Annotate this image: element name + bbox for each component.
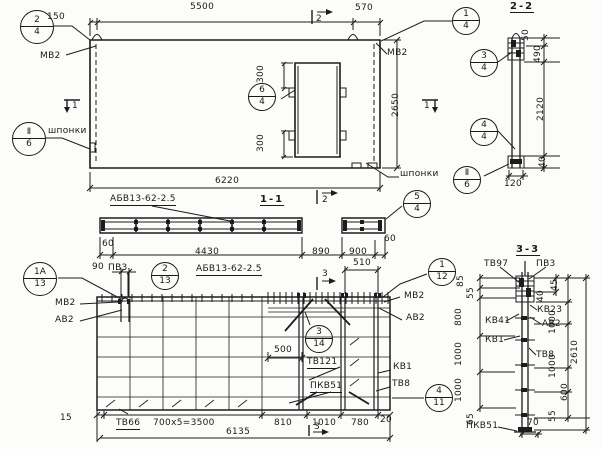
dim-1000-left-a: 1000: [455, 342, 464, 366]
label-tv97: ТВ97: [484, 260, 508, 269]
dim-490: 490: [534, 45, 543, 63]
dim-810: 810: [274, 419, 292, 428]
dim-60-left: 60: [102, 240, 114, 249]
dim-2650: 2650: [392, 93, 401, 117]
section-title-2-2: 2-2: [510, 2, 534, 13]
dim-55-right: 55: [549, 410, 558, 422]
label-tv66: ТВ66: [116, 419, 140, 430]
dim-510: 510: [353, 259, 371, 268]
dim-4430: 4430: [195, 248, 219, 257]
dim-5500: 5500: [190, 3, 214, 12]
callout-1a-13: 1А13: [23, 262, 57, 296]
section-marker-1-right: 1: [424, 102, 430, 111]
dim-15: 15: [60, 414, 72, 423]
callout-2-13: 213: [151, 262, 179, 290]
callout-1-4: 14: [452, 7, 480, 35]
dim-60-right: 60: [384, 235, 396, 244]
dim-90: 90: [92, 263, 104, 272]
callout-5-4: 54: [403, 190, 431, 218]
dim-45: 45: [551, 279, 560, 291]
dim-6220: 6220: [215, 177, 239, 186]
plan-linework: [58, 266, 427, 442]
drawing-linework: [0, 0, 602, 449]
label-shponki-bottom: шпонки: [400, 170, 439, 179]
drawing-sheet: 24 14 64 Ⅱ6 Ⅱ6 150 5500 570 2 МВ2 МВ2 1 …: [0, 0, 602, 449]
dim-55-left: 55: [467, 287, 476, 299]
dim-50: 50: [522, 29, 531, 41]
label-tv8-plan: ТВ8: [392, 380, 410, 389]
dim-120: 120: [504, 180, 522, 189]
label-mv2-right: МВ2: [387, 49, 408, 58]
dim-40: 40: [539, 156, 548, 168]
dim-800: 800: [455, 308, 464, 326]
dim-2120: 2120: [537, 97, 546, 121]
dim-1000-right-a: 1000: [549, 310, 558, 334]
dim-780: 780: [351, 419, 369, 428]
dim-300-top: 300: [257, 65, 266, 83]
label-av2-plan-left: АВ2: [55, 316, 74, 325]
callout-4-4: 44: [470, 118, 498, 146]
dim-1000-left-b: 1000: [455, 378, 464, 402]
label-pv3-plan: ПВ3: [108, 264, 128, 273]
label-mv2-left: МВ2: [40, 52, 61, 61]
label-kv1-plan: КВ1: [393, 363, 412, 372]
callout-keys-left: Ⅱ6: [12, 122, 46, 156]
dim-2610: 2610: [571, 340, 580, 364]
dim-150: 150: [47, 13, 65, 22]
label-kv41: КВ41: [485, 317, 510, 326]
label-pv3-33: ПВ3: [536, 260, 556, 269]
section-title-3-3: 3-3: [516, 245, 540, 256]
section-marker-1-left: 1: [72, 102, 78, 111]
section-marker-2-s11: 2: [322, 196, 328, 205]
dim-85: 85: [457, 275, 466, 287]
label-mv2-plan-right: МВ2: [404, 292, 425, 301]
dim-70: 70: [527, 419, 539, 428]
callout-keys-right: Ⅱ6: [453, 166, 481, 194]
dim-570: 570: [355, 4, 373, 13]
section-marker-3-bottom: 3: [314, 423, 320, 432]
section-title-1-1: 1-1: [260, 195, 284, 206]
label-av2-plan-right: АВ2: [406, 314, 425, 323]
callout-6-4: 64: [248, 83, 276, 111]
label-panel-mark-1-1: АБВ13-62-2.5: [110, 195, 176, 206]
dim-1000-right-b: 1000: [549, 354, 558, 378]
callout-3-14: 314: [305, 325, 333, 353]
dim-900: 900: [349, 248, 367, 257]
section-marker-2-top: 2: [316, 15, 322, 24]
label-shponki-left: шпонки: [48, 127, 87, 136]
callout-1-12: 112: [428, 258, 456, 286]
label-pkv51-33: ПКВ51: [466, 422, 498, 431]
dim-6135: 6135: [226, 428, 250, 437]
dim-20: 20: [380, 416, 392, 425]
dim-500: 500: [274, 346, 292, 355]
dim-700x5-3500: 700х5=3500: [153, 419, 215, 428]
dim-890: 890: [312, 248, 330, 257]
section-marker-3-top: 3: [322, 270, 328, 279]
callout-4-11: 411: [425, 384, 453, 412]
dim-40-right: 40: [537, 290, 546, 302]
label-tv121: ТВ121: [307, 358, 337, 369]
label-kv1-33: КВ1: [485, 336, 504, 345]
dim-300-bottom: 300: [257, 134, 266, 152]
label-mv2-plan-left: МВ2: [55, 299, 76, 308]
label-panel-mark-plan: АБВ13-62-2.5: [196, 265, 262, 276]
callout-3-4: 34: [470, 49, 498, 77]
label-pkv51-plan: ПКВ51: [310, 382, 342, 393]
dim-600: 600: [561, 383, 570, 401]
